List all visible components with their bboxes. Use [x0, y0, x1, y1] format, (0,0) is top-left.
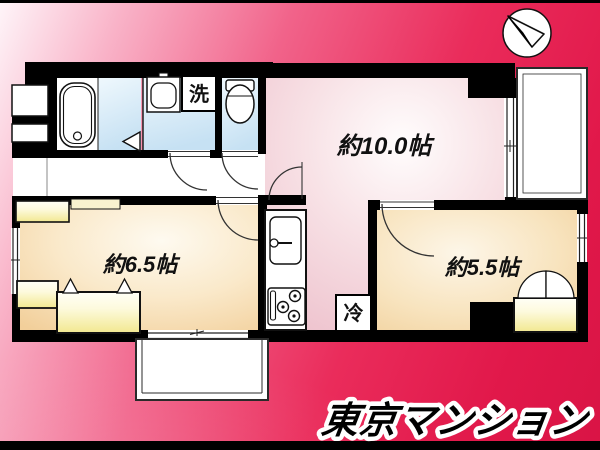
balcony-bottom [136, 339, 268, 400]
balcony-right [517, 68, 587, 199]
room-size-label-west1: 約6.5帖 [103, 252, 182, 277]
window-west2-right [577, 214, 587, 262]
north-compass-icon [503, 9, 551, 57]
room-size-label-ldk: 約10.0帖 [337, 133, 436, 160]
bottom-black-bar [0, 441, 600, 450]
company-logo: 東京マンション [319, 399, 593, 441]
kitchen-counter [265, 210, 306, 330]
room-size-label-west2: 約5.5帖 [445, 255, 524, 280]
closet-west1-left [17, 281, 58, 308]
hallway-floor [13, 152, 265, 196]
washing-machine-label: 洗 [189, 83, 209, 106]
floor-plan-image: 約10.0帖 約6.5帖 約5.5帖 洗 冷 東京マンション [0, 0, 600, 450]
entry-storage-upper [12, 85, 48, 116]
floor-plan-canvas: 約10.0帖 約6.5帖 約5.5帖 洗 冷 東京マンション [0, 0, 600, 450]
shelf-west1-top [71, 199, 120, 209]
window-ldk-right [504, 98, 517, 197]
closet-west1-top [16, 201, 69, 222]
closet-west1-bottom [57, 292, 140, 333]
refrigerator-label: 冷 [344, 301, 364, 325]
closet-west2 [514, 298, 577, 332]
bathtub-icon [60, 83, 95, 147]
entry-storage-lower [12, 124, 48, 142]
top-black-bar [0, 0, 600, 3]
washbasin-icon [147, 73, 180, 112]
toilet-icon [226, 80, 254, 123]
